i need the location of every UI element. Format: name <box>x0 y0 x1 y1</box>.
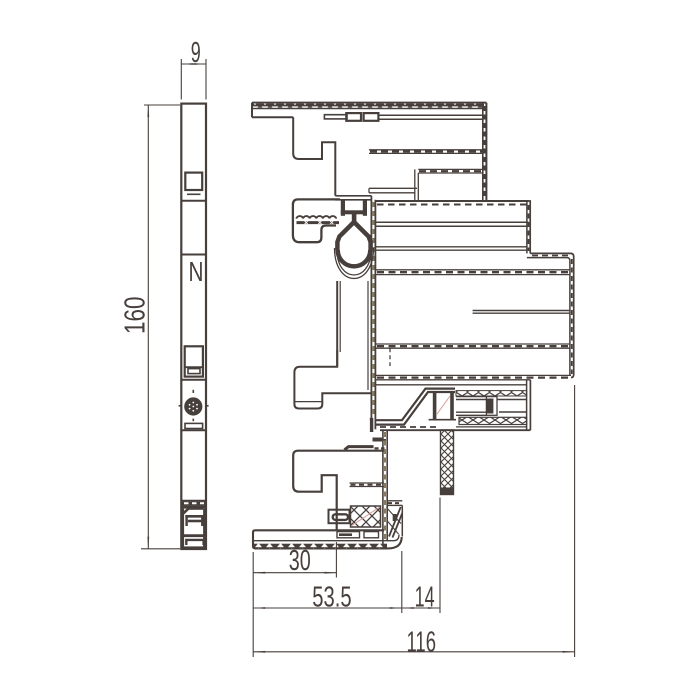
svg-text:53.5: 53.5 <box>312 581 351 613</box>
svg-text:30: 30 <box>289 545 311 577</box>
svg-text:N: N <box>189 256 204 287</box>
svg-text:14: 14 <box>415 581 435 613</box>
svg-text:9: 9 <box>191 37 201 69</box>
svg-text:160: 160 <box>119 296 151 334</box>
svg-text:116: 116 <box>407 627 437 659</box>
